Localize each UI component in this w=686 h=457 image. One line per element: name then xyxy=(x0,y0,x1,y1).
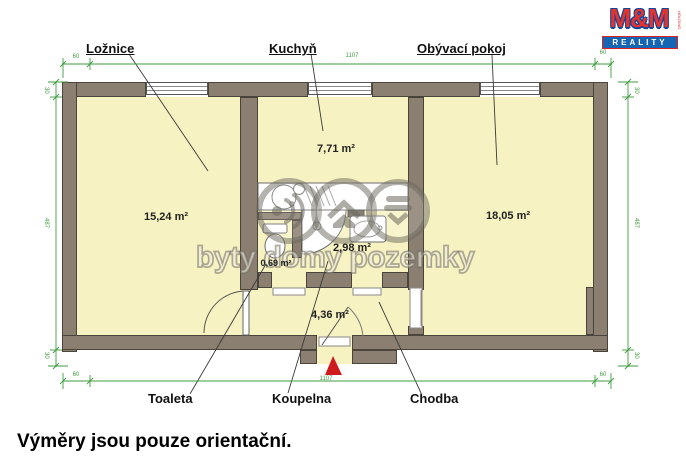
logo-holding-text: HOLDING xyxy=(677,11,682,29)
dim-bottom-right: 60 xyxy=(589,372,617,379)
dim-bottom-main: 1107 xyxy=(276,376,376,383)
dim-right-bottom: 30 xyxy=(632,345,640,365)
room-label-kuchyn: Kuchyň xyxy=(269,41,317,56)
wall-top-c xyxy=(372,82,480,97)
floor-plan-page: byty domy pozemky xyxy=(0,0,686,457)
wall-toilet-top xyxy=(258,212,302,220)
area-kuchyn: 7,71 m² xyxy=(296,143,376,155)
logo-reality-text: REALITY xyxy=(602,36,678,49)
area-loznice: 15,24 m² xyxy=(126,211,206,223)
wall-divider-living-stub xyxy=(408,326,424,335)
window-obyvaci xyxy=(480,82,540,95)
wall-right-step xyxy=(586,287,594,335)
room-label-loznice: Ložnice xyxy=(86,41,134,56)
room-label-koupelna: Koupelna xyxy=(272,391,331,406)
footer-note: Výměry jsou pouze orientační. xyxy=(17,431,292,453)
area-koupelna: 2,98 m² xyxy=(312,242,392,254)
wall-bottom-b xyxy=(352,335,608,350)
dim-right-top: 30 xyxy=(632,80,640,100)
dim-top-right: 60 xyxy=(589,50,617,57)
wall-bottom-a xyxy=(62,335,317,350)
window-kuchyn xyxy=(308,82,372,95)
area-toaleta: 0,69 m² xyxy=(246,258,306,268)
wall-right xyxy=(593,82,608,352)
dim-left-bottom: 30 xyxy=(42,345,50,365)
window-loznice xyxy=(146,82,208,95)
room-label-obyvaci: Obývací pokoj xyxy=(417,41,506,56)
entrance-passage xyxy=(317,335,352,364)
dim-left-main: 487 xyxy=(42,203,50,243)
mm-reality-logo: M&M REALITY HOLDING xyxy=(602,9,682,49)
entry-block-left xyxy=(300,350,317,364)
logo-mm-text: M&M xyxy=(602,3,676,34)
area-obyvaci: 18,05 m² xyxy=(468,210,548,222)
room-label-toaleta: Toaleta xyxy=(148,391,193,406)
room-label-chodba: Chodba xyxy=(410,391,458,406)
entry-block-right xyxy=(352,350,397,364)
area-chodba: 4,36 m² xyxy=(290,309,370,321)
dim-left-top: 30 xyxy=(42,80,50,100)
dim-top-main: 1107 xyxy=(302,53,402,60)
wall-left xyxy=(62,82,77,352)
dim-right-main: 487 xyxy=(632,203,640,243)
dim-bottom-left: 60 xyxy=(62,372,90,379)
wall-top-b xyxy=(208,82,308,97)
